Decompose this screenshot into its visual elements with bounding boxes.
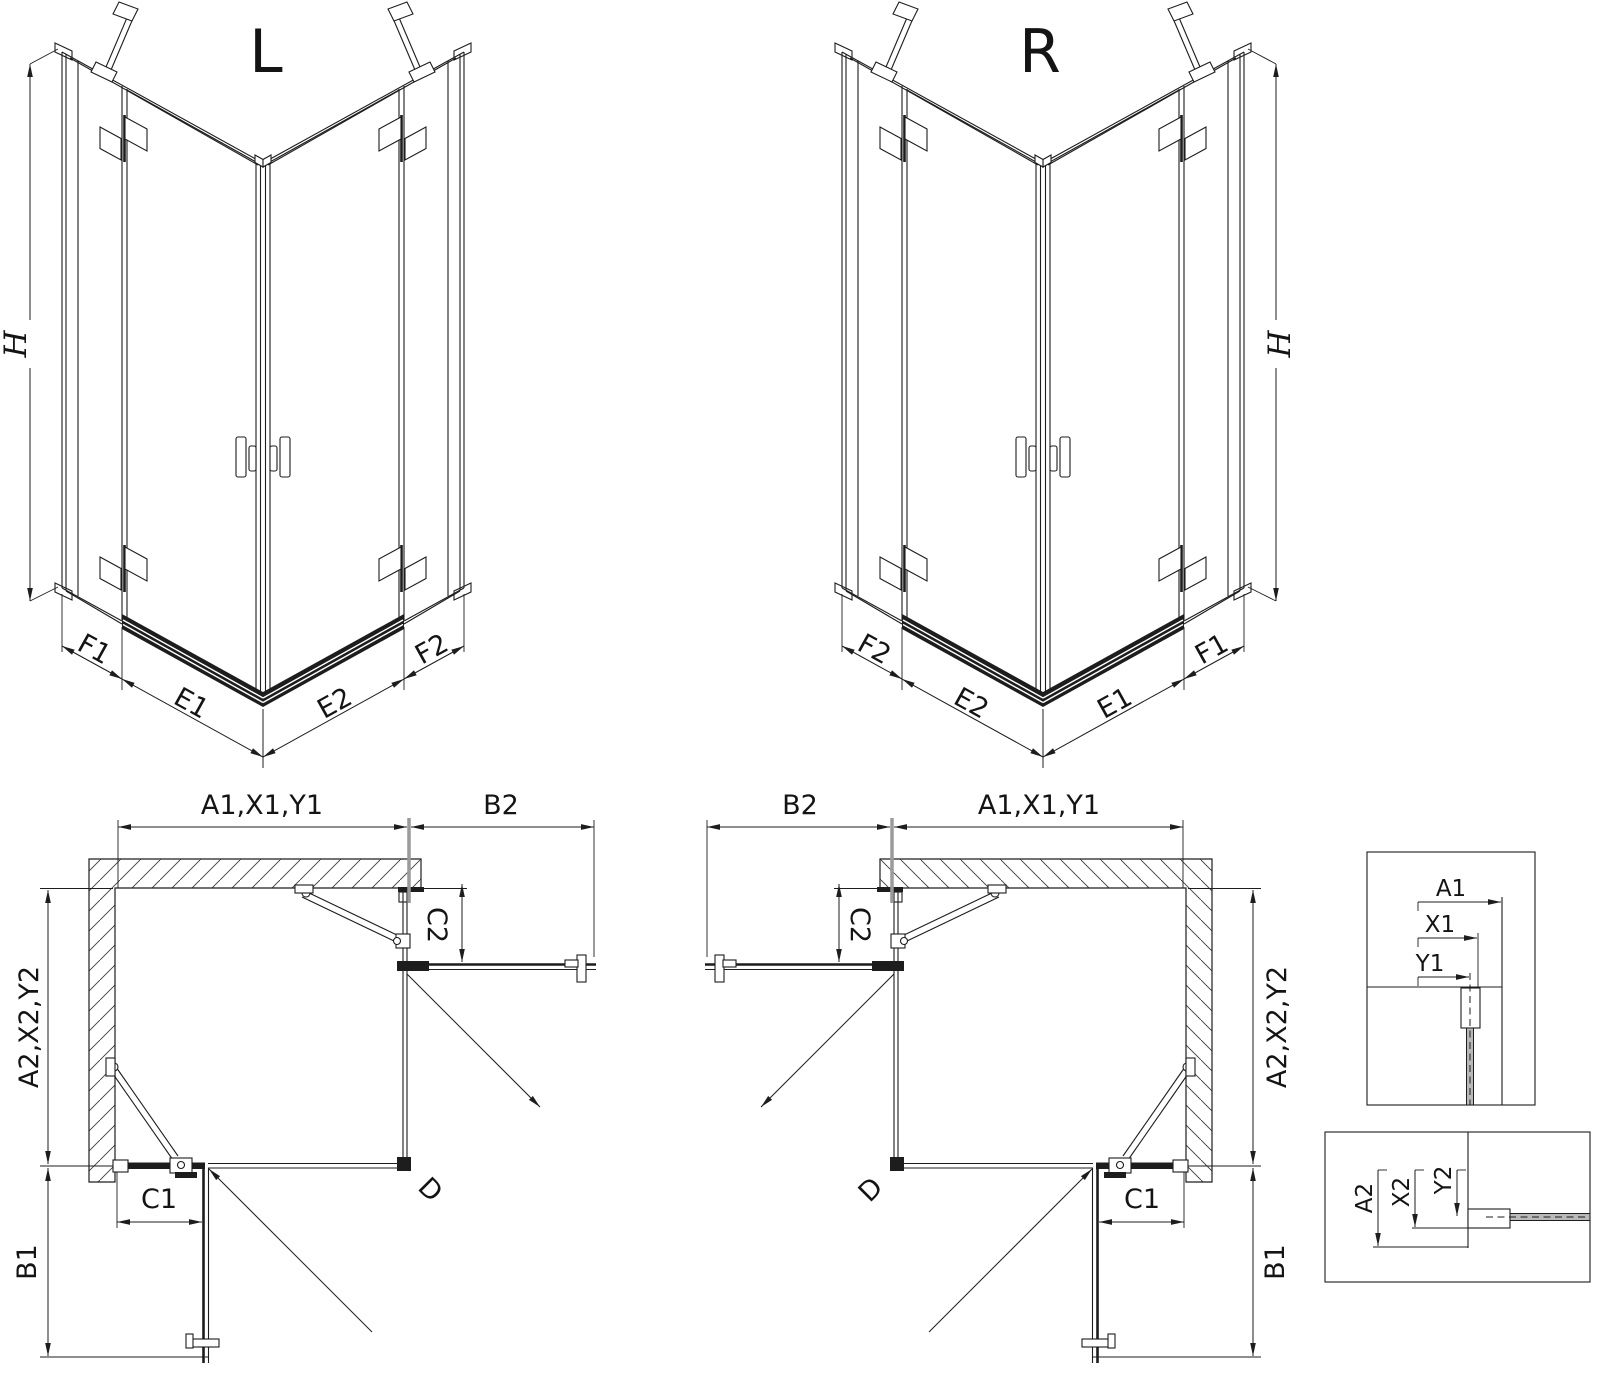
label-b2-plan-left: B2 [483, 790, 519, 821]
label-a2-plan-left: A2,X2,Y2 [14, 966, 45, 1088]
plan-right-geometry [705, 818, 1261, 1363]
label-f1-right: F1 [1190, 628, 1234, 671]
label-c1-plan-left: C1 [141, 1184, 177, 1215]
detail-box-a2: A2 X2 Y2 [1325, 1132, 1590, 1282]
label-b1-plan-right: B1 [1260, 1244, 1291, 1280]
shower-enclosure-diagram: L H F1 E1 E2 F2 R H F2 E2 E1 F1 A1,X1,Y1… [0, 0, 1600, 1373]
label-a2-detail: A2 [1352, 1183, 1378, 1213]
label-c2-plan-left: C2 [421, 907, 452, 943]
label-e2-right: E2 [949, 682, 994, 726]
label-c1-plan-right: C1 [1124, 1184, 1160, 1215]
technical-drawing-page: L H F1 E1 E2 F2 R H F2 E2 E1 F1 A1,X1,Y1… [0, 0, 1600, 1373]
plan-view-right: A1,X1,Y1 B2 C2 A2,X2,Y2 B1 C1 D [705, 790, 1293, 1363]
label-e1-left: E1 [169, 682, 214, 726]
label-y2-detail: Y2 [1431, 1166, 1457, 1196]
label-d-plan-left: D [412, 1172, 449, 1209]
label-f1-left: F1 [72, 628, 116, 671]
label-f2-right: F2 [852, 628, 896, 671]
detail-box-a1: A1 X1 Y1 [1367, 852, 1535, 1105]
label-e1-right: E1 [1092, 682, 1137, 726]
label-c2-plan-right: C2 [844, 907, 875, 943]
plan-left-geometry [40, 818, 596, 1363]
iso-right-title: R [1019, 17, 1061, 87]
label-x2-detail: X2 [1389, 1177, 1415, 1207]
label-a1-detail: A1 [1436, 876, 1466, 902]
iso-view-left: L H F1 E1 E2 F2 [0, 2, 471, 768]
iso-left-title: L [249, 17, 283, 87]
label-d-plan-right: D [853, 1172, 890, 1209]
label-a2-plan-right: A2,X2,Y2 [1262, 966, 1293, 1088]
label-a1-plan-left: A1,X1,Y1 [201, 790, 323, 821]
label-b2-plan-right: B2 [782, 790, 818, 821]
label-y1-detail: Y1 [1415, 951, 1445, 977]
label-x1-detail: X1 [1425, 912, 1455, 938]
label-f2-left: F2 [410, 628, 454, 671]
label-a1-plan-right: A1,X1,Y1 [978, 790, 1100, 821]
label-b1-plan-left: B1 [12, 1244, 43, 1280]
plan-view-left: A1,X1,Y1 B2 C2 A2,X2,Y2 B1 C1 D [12, 790, 596, 1363]
label-e2-left: E2 [312, 682, 357, 726]
label-h-left: H [0, 330, 34, 359]
iso-view-right: R H F2 E2 E1 F1 [835, 2, 1298, 768]
label-h-right: H [1262, 330, 1298, 359]
